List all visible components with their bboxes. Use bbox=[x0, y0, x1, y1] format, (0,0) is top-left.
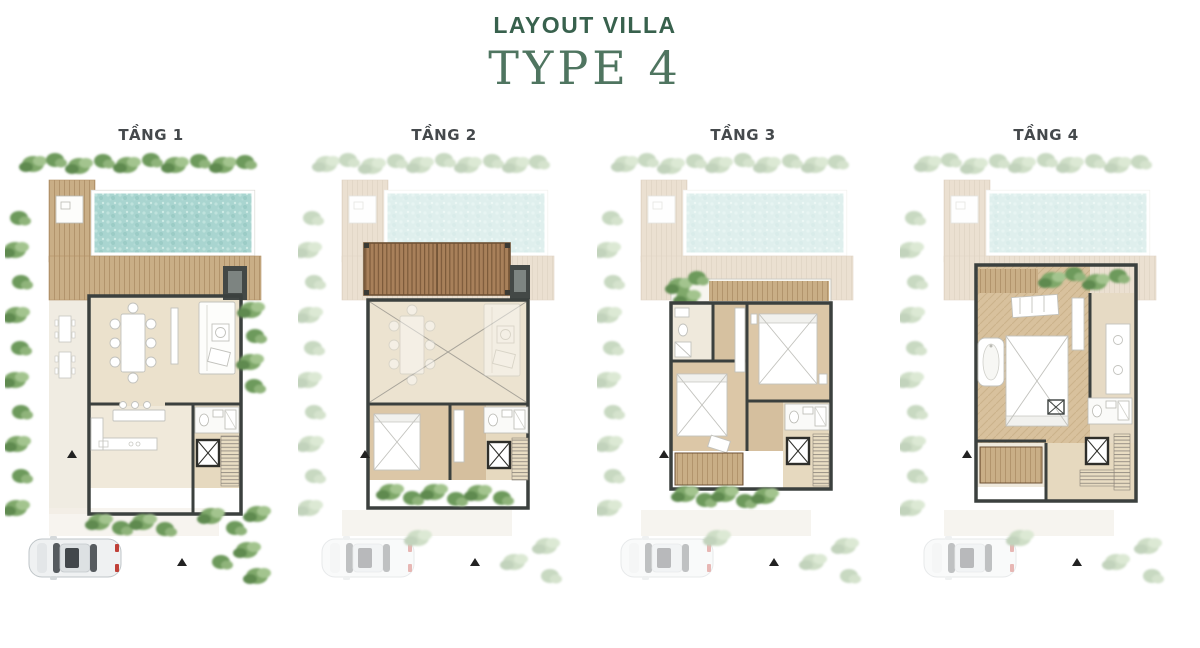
floor-column-1: TẦNG 1 bbox=[5, 126, 297, 642]
bedroom-bed bbox=[751, 314, 827, 384]
staircase bbox=[1080, 434, 1130, 490]
building bbox=[976, 265, 1136, 501]
building bbox=[671, 303, 831, 509]
pergola bbox=[364, 243, 510, 295]
floor-column-2: TẦNG 2 bbox=[298, 126, 590, 642]
floor-plan-tang-2 bbox=[298, 148, 588, 642]
layout-sheet: LAYOUT VILLA TYPE 4 TẦNG 1 bbox=[0, 0, 1200, 648]
page-subtitle: TYPE 4 bbox=[0, 41, 1170, 95]
floor-column-4: TẦNG 4 bbox=[900, 126, 1192, 642]
lounge-bench bbox=[1011, 294, 1058, 317]
floor-label-4: TẦNG 4 bbox=[900, 126, 1192, 144]
floor-plan-tang-1 bbox=[5, 148, 295, 642]
elevator bbox=[197, 440, 219, 466]
bathroom bbox=[195, 407, 239, 433]
pool-deck bbox=[49, 180, 95, 262]
wardrobe bbox=[1072, 298, 1084, 350]
car-illustration bbox=[29, 536, 121, 580]
page-title: LAYOUT VILLA bbox=[0, 12, 1170, 39]
bedroom-bed bbox=[374, 414, 420, 470]
plant-row bbox=[19, 153, 257, 174]
header: LAYOUT VILLA TYPE 4 bbox=[0, 0, 1170, 95]
direction-arrow-icon bbox=[1072, 558, 1082, 566]
sofa-set bbox=[199, 302, 235, 374]
balcony-deck bbox=[978, 269, 1038, 293]
floor-column-3: TẦNG 3 bbox=[597, 126, 889, 642]
planter-balcony bbox=[671, 486, 779, 509]
vanity bbox=[1106, 324, 1130, 394]
wardrobe bbox=[735, 308, 745, 372]
direction-arrow-icon bbox=[962, 450, 972, 458]
floor-label-2: TẦNG 2 bbox=[298, 126, 590, 144]
swimming-pool bbox=[91, 190, 255, 256]
bathroom bbox=[484, 407, 528, 433]
plant-strip bbox=[5, 211, 33, 516]
direction-arrow-icon bbox=[177, 558, 187, 566]
terrace-deck bbox=[980, 447, 1042, 483]
elevator bbox=[488, 442, 510, 468]
building bbox=[368, 300, 528, 508]
floor-label-1: TẦNG 1 bbox=[5, 126, 297, 144]
floor-plan-tang-3 bbox=[597, 148, 887, 642]
balcony-deck bbox=[675, 453, 743, 485]
floor-plan-tang-4 bbox=[900, 148, 1190, 642]
elevator bbox=[787, 438, 809, 464]
direction-arrow-icon bbox=[470, 558, 480, 566]
bathtub bbox=[978, 338, 1004, 386]
direction-arrow-icon bbox=[769, 558, 779, 566]
wardrobe bbox=[454, 410, 464, 462]
tv-unit bbox=[171, 308, 178, 364]
bathroom bbox=[785, 404, 829, 430]
floor-label-3: TẦNG 3 bbox=[597, 126, 889, 144]
planter-balcony bbox=[376, 484, 514, 507]
bathroom bbox=[1088, 398, 1132, 424]
bedroom-bed bbox=[1006, 336, 1068, 426]
elevator bbox=[1086, 438, 1108, 464]
direction-arrow-icon bbox=[659, 450, 669, 458]
building bbox=[89, 266, 247, 514]
